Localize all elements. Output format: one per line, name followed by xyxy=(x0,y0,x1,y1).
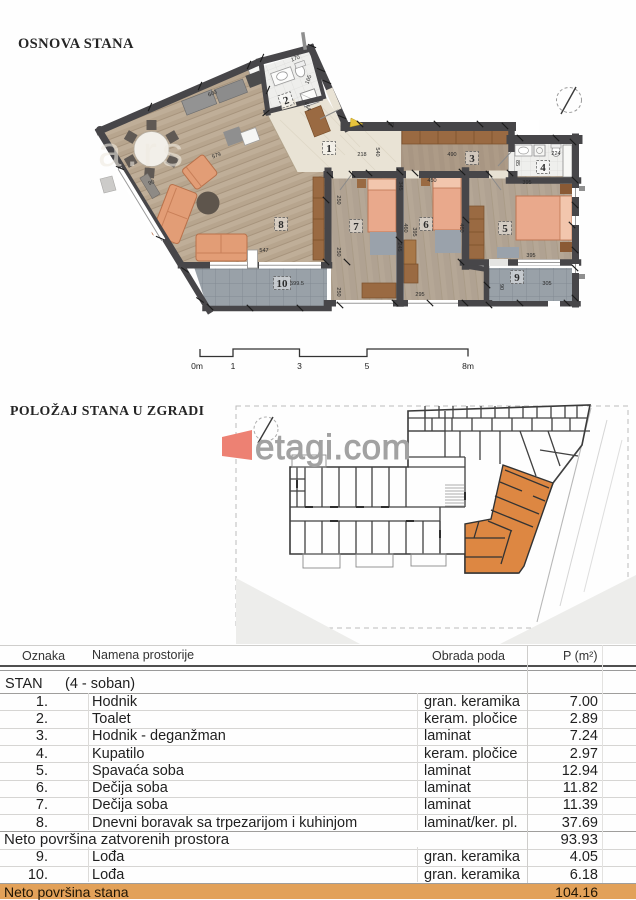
svg-text:3: 3 xyxy=(469,153,475,165)
svg-text:8m: 8m xyxy=(462,361,474,371)
svg-text:9: 9 xyxy=(514,272,520,284)
svg-text:599.5: 599.5 xyxy=(290,281,304,287)
svg-text:8: 8 xyxy=(278,219,284,231)
svg-text:3: 3 xyxy=(297,361,302,371)
svg-text:1: 1 xyxy=(231,361,236,371)
svg-text:7: 7 xyxy=(353,221,359,233)
svg-text:460: 460 xyxy=(402,223,408,232)
svg-text:395: 395 xyxy=(526,253,535,259)
svg-text:295: 295 xyxy=(415,292,424,298)
svg-text:85: 85 xyxy=(514,160,520,166)
svg-text:250: 250 xyxy=(335,287,341,296)
svg-text:6: 6 xyxy=(423,219,429,231)
svg-text:10: 10 xyxy=(277,278,289,290)
svg-text:5: 5 xyxy=(365,361,370,371)
svg-text:1: 1 xyxy=(326,143,332,155)
svg-text:345: 345 xyxy=(397,181,403,190)
svg-text:395: 395 xyxy=(411,227,417,236)
svg-text:250: 250 xyxy=(335,195,341,204)
svg-text:395: 395 xyxy=(522,180,531,186)
svg-text:0m: 0m xyxy=(191,361,203,371)
svg-text:540: 540 xyxy=(374,147,380,156)
svg-text:a.rs: a.rs xyxy=(98,128,188,175)
svg-text:218: 218 xyxy=(357,152,366,158)
svg-text:460: 460 xyxy=(458,223,464,232)
svg-text:490: 490 xyxy=(447,152,456,158)
svg-text:etagi.com: etagi.com xyxy=(255,428,411,467)
svg-text:90: 90 xyxy=(498,284,504,290)
svg-text:245: 245 xyxy=(396,242,402,251)
svg-text:224: 224 xyxy=(551,151,560,157)
svg-text:4: 4 xyxy=(540,162,546,174)
svg-text:450: 450 xyxy=(427,178,436,184)
svg-text:305: 305 xyxy=(542,281,551,287)
svg-text:5: 5 xyxy=(502,223,508,235)
svg-text:250: 250 xyxy=(335,247,341,256)
svg-text:547: 547 xyxy=(259,248,268,254)
